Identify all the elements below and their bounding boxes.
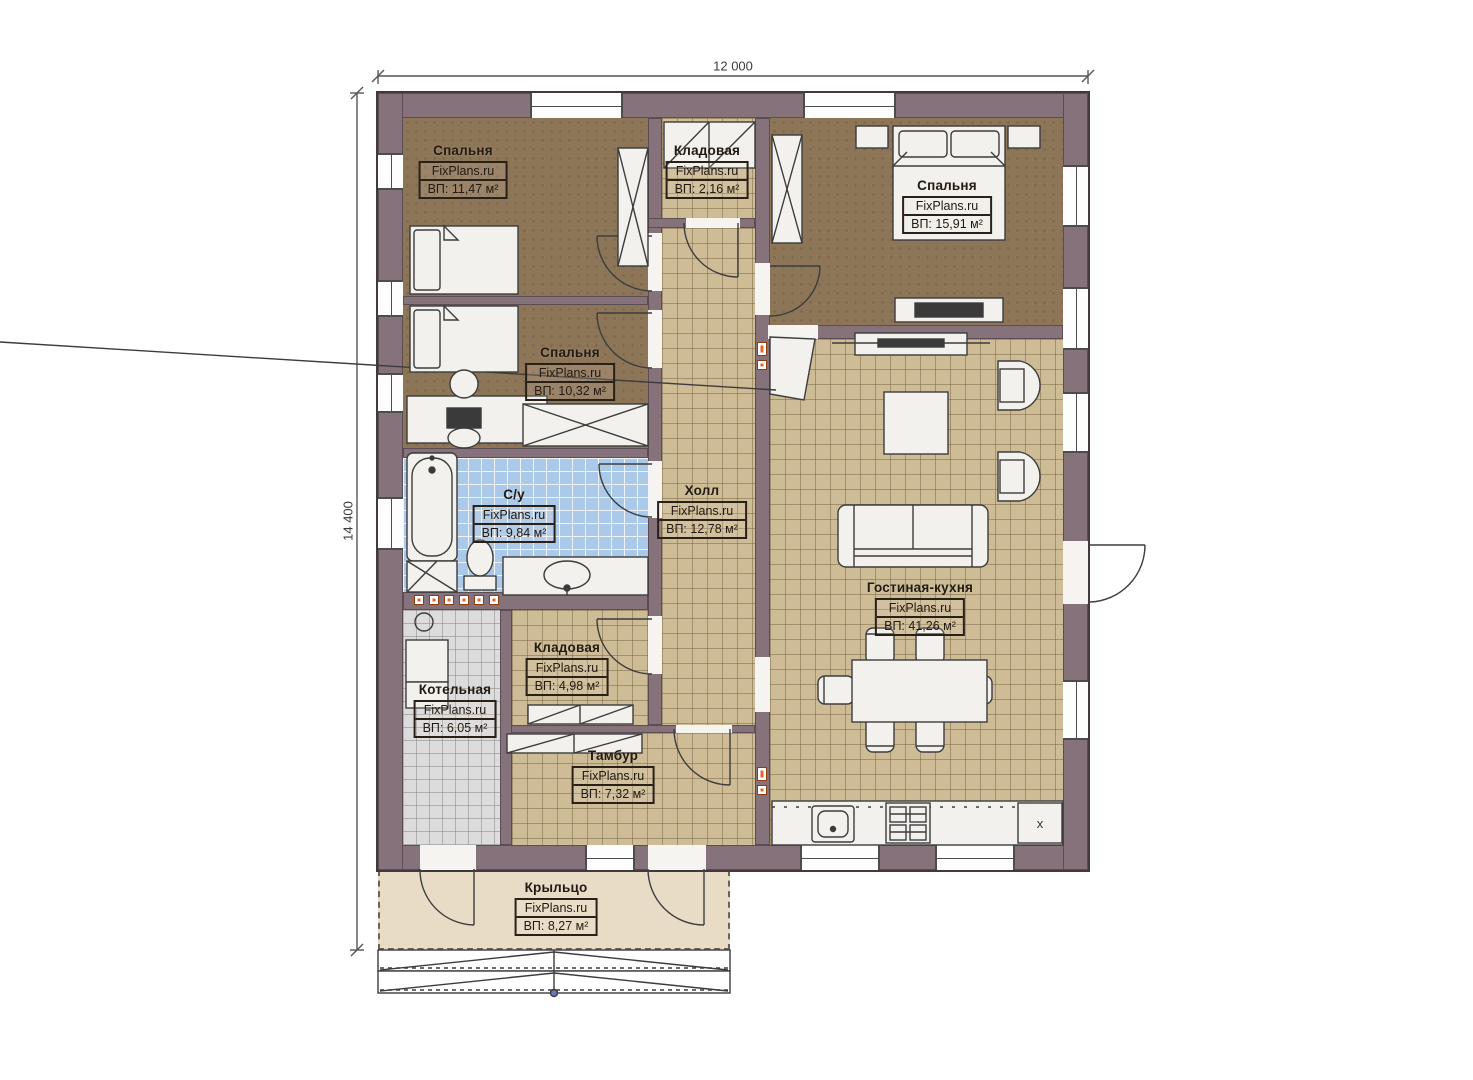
room-label-bathroom: С/у FixPlans.ru ВП: 9,84 м² <box>473 487 556 543</box>
dimension-height: 14 400 <box>341 497 356 545</box>
room-label-bedroom-1: Спальня FixPlans.ru ВП: 11,47 м² <box>419 143 508 199</box>
room-name: Спальня <box>419 143 508 158</box>
room-info-box: FixPlans.ru ВП: 15,91 м² <box>902 196 992 234</box>
watermark: FixPlans.ru <box>574 768 653 786</box>
wall-hall-right <box>755 118 770 845</box>
room-label-vestibule: Тамбур FixPlans.ru ВП: 7,32 м² <box>572 748 655 804</box>
doorway-boiler-porch <box>420 845 476 870</box>
wall-exterior-top <box>378 93 1088 118</box>
radiator-bath-6 <box>489 595 499 605</box>
doorway-bedroom-2 <box>755 263 770 315</box>
room-area: ВП: 4,98 м² <box>528 678 607 694</box>
watermark: FixPlans.ru <box>528 660 607 678</box>
porch-steps <box>378 950 730 997</box>
watermark: FixPlans.ru <box>416 702 495 720</box>
wall-exterior-left <box>378 93 403 870</box>
room-info-box: FixPlans.ru ВП: 10,32 м² <box>525 363 615 401</box>
room-info-box: FixPlans.ru ВП: 2,16 м² <box>666 161 749 199</box>
room-label-hall: Холл FixPlans.ru ВП: 12,78 м² <box>657 483 747 539</box>
room-area: ВП: 2,16 м² <box>668 181 747 197</box>
room-area: ВП: 7,32 м² <box>574 786 653 802</box>
room-label-bedroom-3: Спальня FixPlans.ru ВП: 10,32 м² <box>525 345 615 401</box>
room-label-pantry-2: Кладовая FixPlans.ru ВП: 4,98 м² <box>526 640 609 696</box>
room-info-box: FixPlans.ru ВП: 4,98 м² <box>526 658 609 696</box>
floor-plan: x 12 000 14 400 Спальня FixPlans.ru ВП: … <box>0 0 1473 1080</box>
doorway-vestibule-hall <box>676 725 732 733</box>
room-area: ВП: 6,05 м² <box>416 720 495 736</box>
wall-bedroom3-bathroom <box>403 448 648 458</box>
doorway-vestibule-porch <box>648 845 706 870</box>
radiator-bath-3 <box>444 595 454 605</box>
room-info-box: FixPlans.ru ВП: 7,32 м² <box>572 766 655 804</box>
room-area: ВП: 10,32 м² <box>527 383 613 399</box>
watermark: FixPlans.ru <box>475 507 554 525</box>
room-name: Спальня <box>525 345 615 360</box>
room-info-box: FixPlans.ru ВП: 41,26 м² <box>875 598 965 636</box>
room-area: ВП: 41,26 м² <box>877 618 963 634</box>
room-area: ВП: 9,84 м² <box>475 525 554 541</box>
room-info-box: FixPlans.ru ВП: 6,05 м² <box>414 700 497 738</box>
window-bottom-1 <box>585 845 635 870</box>
room-label-bedroom-2: Спальня FixPlans.ru ВП: 15,91 м² <box>902 178 992 234</box>
watermark: FixPlans.ru <box>527 365 613 383</box>
radiator-hall-top-1 <box>757 342 767 356</box>
radiator-hall-top-2 <box>757 360 767 370</box>
room-area: ВП: 12,78 м² <box>659 521 745 537</box>
window-left-2 <box>378 280 403 317</box>
room-name: Кладовая <box>666 143 749 158</box>
passage-hall-living <box>755 657 770 712</box>
doorway-pantry-top <box>686 218 740 228</box>
window-right-1 <box>1063 165 1088 227</box>
doorway-bedroom-1 <box>648 233 662 291</box>
watermark: FixPlans.ru <box>668 163 747 181</box>
doorway-living-top <box>768 325 818 339</box>
window-left-1 <box>378 153 403 190</box>
window-right-4 <box>1063 680 1088 740</box>
floor-hall <box>662 228 755 725</box>
room-label-porch: Крыльцо FixPlans.ru ВП: 8,27 м² <box>515 880 598 936</box>
room-area: ВП: 11,47 м² <box>421 181 506 197</box>
window-right-3 <box>1063 392 1088 453</box>
wall-bathroom-bottom <box>403 592 648 610</box>
room-name: Холл <box>657 483 747 498</box>
room-name: Котельная <box>414 682 497 697</box>
watermark: FixPlans.ru <box>659 503 745 521</box>
room-info-box: FixPlans.ru ВП: 8,27 м² <box>515 898 598 936</box>
room-name: С/у <box>473 487 556 502</box>
room-info-box: FixPlans.ru ВП: 12,78 м² <box>657 501 747 539</box>
door-living-exterior <box>1090 545 1145 602</box>
doorway-living-exterior <box>1063 541 1088 604</box>
radiator-bath-5 <box>474 595 484 605</box>
window-bottom-2 <box>800 845 880 870</box>
doorway-pantry-2 <box>648 616 662 674</box>
room-name: Гостиная-кухня <box>867 580 973 595</box>
room-area: ВП: 8,27 м² <box>517 918 596 934</box>
watermark: FixPlans.ru <box>517 900 596 918</box>
radiator-bath-4 <box>459 595 469 605</box>
room-area: ВП: 15,91 м² <box>904 216 990 232</box>
radiator-bath-1 <box>414 595 424 605</box>
watermark: FixPlans.ru <box>904 198 990 216</box>
wall-bedroom1-bedroom3 <box>403 296 648 305</box>
wall-boiler-pantry2 <box>500 610 512 845</box>
room-info-box: FixPlans.ru ВП: 11,47 м² <box>419 161 508 199</box>
watermark: FixPlans.ru <box>421 163 506 181</box>
radiator-hall-bottom-2 <box>757 785 767 795</box>
room-label-pantry-top: Кладовая FixPlans.ru ВП: 2,16 м² <box>666 143 749 199</box>
room-name: Тамбур <box>572 748 655 763</box>
window-top-1 <box>530 93 623 118</box>
watermark: FixPlans.ru <box>877 600 963 618</box>
radiator-hall-bottom-1 <box>757 767 767 781</box>
window-left-3 <box>378 373 403 413</box>
doorway-bedroom-3 <box>648 310 662 368</box>
window-bottom-3 <box>935 845 1015 870</box>
window-right-2 <box>1063 287 1088 350</box>
room-name: Кладовая <box>526 640 609 655</box>
dimension-width: 12 000 <box>709 59 757 74</box>
room-info-box: FixPlans.ru ВП: 9,84 м² <box>473 505 556 543</box>
room-label-living-kitchen: Гостиная-кухня FixPlans.ru ВП: 41,26 м² <box>867 580 973 636</box>
radiator-bath-2 <box>429 595 439 605</box>
room-label-boiler-room: Котельная FixPlans.ru ВП: 6,05 м² <box>414 682 497 738</box>
window-left-4 <box>378 497 403 550</box>
window-top-2 <box>803 93 896 118</box>
room-name: Спальня <box>902 178 992 193</box>
room-name: Крыльцо <box>515 880 598 895</box>
